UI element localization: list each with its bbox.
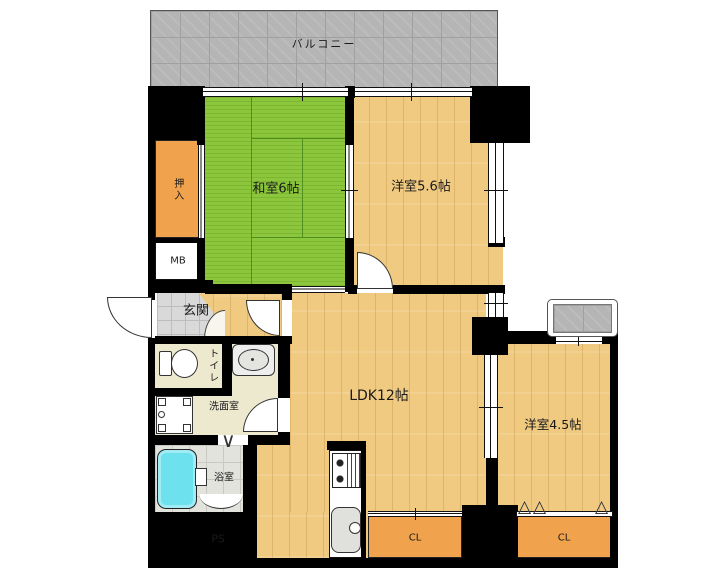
window [203, 87, 348, 97]
wall [155, 435, 218, 445]
washer-corner [158, 398, 166, 406]
sliding-partition-washitsu-ldk [292, 286, 345, 293]
wall [282, 284, 292, 300]
window [488, 143, 504, 243]
wall [243, 445, 257, 512]
window-tick [484, 190, 508, 191]
ldk-label: LDK12帖 [349, 388, 409, 404]
cl-ldk-label: CL [409, 532, 422, 544]
small-balcony [553, 304, 612, 333]
stove-icon [332, 453, 361, 488]
oshiire-label: 押入 [171, 178, 183, 202]
washer-corner [158, 424, 166, 432]
washer-corner [183, 398, 191, 406]
washer-knob [158, 411, 165, 418]
tatami-line [302, 138, 303, 237]
window [355, 87, 472, 97]
ldk-floor-south [255, 512, 327, 558]
window-tick [484, 303, 508, 304]
tatami-line [251, 237, 348, 238]
vanity-faucet-dot [251, 358, 254, 361]
doorway-gap [282, 300, 292, 336]
yokushitsu-label: 浴室 [214, 472, 234, 484]
wall [610, 331, 618, 568]
senmen-label: 洗面室 [209, 401, 239, 413]
mb-label: MB [170, 255, 186, 267]
window [488, 293, 504, 317]
wall [155, 238, 201, 243]
wall-column [470, 86, 530, 143]
yoshitsu56-label: 洋室5.6帖 [391, 181, 451, 196]
wall [278, 338, 290, 398]
folding-door-icon: ∨ [221, 428, 236, 452]
balcony-label: バルコニー [292, 39, 357, 52]
window-tick [411, 83, 412, 101]
window-tick [479, 407, 503, 408]
window-tick [415, 508, 416, 520]
floor-plan: バルコニー [0, 0, 720, 576]
bath-step [195, 468, 207, 486]
toilet-bowl [171, 349, 198, 378]
toilet-label: トイレ [206, 348, 218, 384]
wall [257, 558, 618, 568]
wall [197, 238, 205, 292]
wall [345, 238, 354, 292]
window-tick [302, 83, 303, 101]
wall [205, 284, 292, 294]
sliding-door-oshiire [198, 145, 205, 238]
entrance-door [107, 297, 152, 338]
wall [222, 338, 232, 394]
closet-door-icon: △ [533, 499, 546, 516]
wall [248, 435, 290, 445]
wall [345, 93, 354, 145]
wall [361, 445, 366, 558]
ps-label: PS [211, 534, 225, 547]
tatami-line [251, 138, 348, 139]
closet-door-icon: △ [518, 499, 531, 516]
wall [486, 458, 498, 508]
wall [155, 388, 232, 396]
closet-door-icon: △ [595, 499, 608, 516]
sliding-door-washitsu [345, 145, 354, 238]
genkan-label: 玄関 [183, 305, 209, 320]
washer-corner [183, 424, 191, 432]
cl-bedroom-label: CL [558, 532, 571, 544]
wall [348, 285, 357, 294]
kitchen-faucet-icon [349, 522, 361, 534]
wall [148, 512, 257, 568]
washing-machine [156, 396, 193, 434]
yoshitsu45-label: 洋室4.5帖 [524, 418, 581, 432]
wall [197, 92, 205, 145]
window-tick [341, 190, 358, 191]
bathtub [157, 449, 197, 509]
washitsu-label: 和室6帖 [252, 183, 299, 198]
